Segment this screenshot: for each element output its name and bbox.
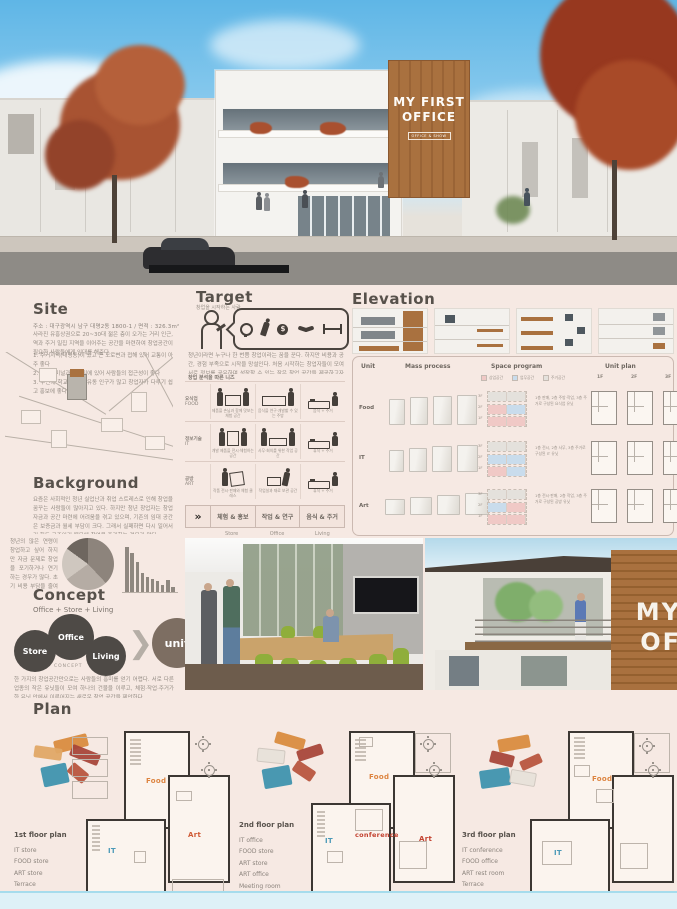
wall-tv [353,576,419,614]
chevron-right-icon: ❯ [128,626,153,661]
double-chevron-icon: » [186,510,210,523]
sign-partial-text: OF [640,628,677,656]
concept-caption: CONCEPT [54,664,83,669]
background-paragraph-2: 청년의 많은 연령이 창업하고 싶어 하지만 자금 문제로 창업을 포기하거나 … [10,538,58,590]
exterior-wood-sign: MY OF [611,550,677,690]
runner-icon [260,321,270,336]
building-glass-strip [222,162,396,186]
sidewalk [0,236,677,253]
balcony-slab [218,130,400,138]
needs-row-food: 요식업FOOD 제품을 손님과 함께 맛보는 체험 공간 음식을 연구·개발할 … [185,381,345,421]
summary-office: 작업 & 연구 [255,506,300,527]
unit-label: Food [359,405,374,411]
floor-1f: 1F [597,375,603,380]
plan-group-3: 3rd floor plan IT conference FOOD office… [458,695,677,893]
unit-row-it: IT 3F 2F 1F 1층 전시, 2층 사무, 3층 주거로 구성된 IT … [359,437,667,483]
balcony-planter [285,176,309,188]
pedestrian [524,192,530,206]
founder-person-icon [196,310,226,348]
cloud [210,20,360,70]
presentation-board: MY FIRSTOFFICE OFFICE & SHOW Site 주소 : 대… [0,0,677,909]
autumn-tree-left [95,45,185,125]
plan-item: Terrace [14,879,49,890]
unit-row-food: Food 3F 2F 1F 1층 판매, 2층 주방·작업, 3층 주거로 구성… [359,387,667,433]
floor-plan-drawing: Food conference IT Art [297,731,455,899]
wood-signage-tower: MY FIRSTOFFICE OFFICE & SHOW [388,60,470,198]
label-office: Office [254,531,299,537]
needs-summary-en: Store Office Living [185,531,345,537]
need-caption: 제품을 손님과 함께 맛보는 체험 공간 [212,408,254,419]
plan-item: FOOD store [239,846,281,857]
room-label-food: Food [369,773,389,781]
floor-plan-drawing: Food IT Art [72,731,230,899]
plan-item: IT office [239,835,281,846]
pedestrian [256,196,262,210]
balcony-slab [218,184,400,192]
site-map-target-building [67,374,87,400]
col-unit-plan: Unit plan [605,363,636,370]
unit-plans [591,391,677,425]
interior-rendering [185,538,423,690]
plan-items: IT conference FOOD office ART rest room … [462,845,504,891]
row-label-en: FOOD [185,402,210,407]
barbell-icon [323,324,342,334]
room-label-food: Food [146,777,166,785]
site-address: 주소 : 대구광역시 남구 대명2동 1800-1 / 면적 : 326.3m² [33,322,183,330]
lightbulb-icon [240,323,253,336]
need-caption: 개발 제품을 전시·체험하는 공간 [212,448,254,459]
col-mass-process: Mass process [405,363,450,370]
needs-table: 요식업FOOD 제품을 손님과 함께 맛보는 체험 공간 음식을 연구·개발할 … [185,381,345,537]
need-caption: 휴식 + 주거 [302,448,344,459]
room-label-it: IT [325,837,333,845]
pedestrian [378,176,384,188]
col-space-program: Space program [491,363,542,370]
autumn-tree-left [45,120,115,190]
unit-table: Unit Mass process Space program Unit pla… [352,356,674,536]
plan-name: 2nd floor plan [239,821,294,829]
floor-2f: 2F [631,375,637,380]
hero-rendering: MY FIRSTOFFICE OFFICE & SHOW [0,0,677,285]
row-label-en: ART [185,482,210,487]
pedestrian [264,197,270,211]
plan-item: ART store [239,858,281,869]
needs-row-it: 정보기술IT 개발 제품을 전시·체험하는 공간 사무·회의를 위한 작업 공간… [185,421,345,461]
elevation-side-left [434,308,510,354]
unit-note: 1층 전시·판매, 2층 작업, 3층 주거로 구성된 공방 유닛 [535,493,587,504]
mass-process-models [389,445,478,472]
ground-floor-glazing [298,196,390,236]
seated-person [323,616,339,642]
need-caption: 음식을 연구·개발할 수 있는 주방 [257,408,299,419]
room-label-food: Food [592,775,612,783]
speech-bubble: $ [233,308,349,350]
needs-summary: » 체험 & 홍보 작업 & 연구 음식 & 주거 [185,505,345,528]
space-program-diagram: 3F 2F 1F [487,441,527,479]
row-label-en: IT [185,442,210,447]
footer-band [0,891,677,909]
elevation-side-right [598,308,674,354]
sign-partial-text: MY [636,598,677,626]
floor-plan-drawing: Food IT [516,731,674,899]
plan-item: IT store [14,845,49,856]
plan-items: IT store FOOD store ART store Terrace [14,845,49,891]
plan-item: ART store [14,868,49,879]
building-glass-strip [222,108,396,132]
label-store: Store [209,531,254,537]
legend-item: 상업공간 [481,375,503,381]
legend-item: 업무공간 [512,375,534,381]
needs-caption: 창업 분석을 따른 니즈 [188,374,235,381]
unit-row-art: Art 3F 2F 1F 1층 전시·판매, 2층 작업, 3층 주거로 구성된… [359,485,667,531]
coin-icon: $ [277,324,288,335]
exterior-rendering: MY OF [425,538,677,690]
target-description: 청년이라면 누구나 한 번쯤 창업이라는 꿈을 꾼다. 하지만 비용과 공간, … [188,352,344,374]
tree-trunk [112,175,117,243]
need-caption: 사무·회의를 위한 작업 공간 [257,448,299,459]
plan-item: ART rest room [462,868,504,879]
pedestrian [302,194,308,208]
elevation-front [352,308,428,354]
room-label-art: Art [188,831,201,839]
need-caption: 작업실과 재료 보관 공간 [257,488,299,499]
parked-car [143,247,235,269]
unit-plans [591,489,677,523]
pie-chart [62,538,114,590]
plan-group-2: 2nd floor plan IT office FOOD store ART … [235,695,457,893]
sign-title: MY FIRSTOFFICE [393,95,465,125]
plan-item: Terrace [462,879,504,890]
unit-plans [591,441,677,475]
space-program-diagram: 3F 2F 1F [487,391,527,429]
concept-title: Concept [33,586,105,604]
unit-label: Art [359,503,369,509]
legend-item: 주거공간 [543,375,565,381]
needs-row-art: 공방ART 작품 전시·판매와 체험 클래스 작업실과 재료 보관 공간 휴식 … [185,461,345,501]
need-caption: 음식 + 주거 [302,408,344,419]
sign-subtitle: OFFICE & SHOW [408,132,451,140]
plan-item: FOOD office [462,856,504,867]
elevation-title: Elevation [352,290,435,308]
plan-group-1: 1st floor plan IT store FOOD store ART s… [10,695,232,893]
background-paragraph-1: 요즘은 사회적인 청년 실업난과 취업 스트레스로 인해 창업을 꿈꾸는 사람들… [33,496,173,534]
need-caption: 작품 전시·판매와 체험 클래스 [212,488,254,499]
balcony-planter [320,122,346,135]
label-living: Living [300,531,345,537]
need-caption: 휴식 + 주거 [302,488,344,499]
elevation-back [516,308,592,354]
tree-trunk [612,160,617,240]
balcony-planter [250,122,272,134]
col-unit: Unit [361,363,375,370]
room-label-it: IT [554,849,562,857]
plan-name: 3rd floor plan [462,831,516,839]
bar-chart [122,536,178,593]
concept-formula: Office + Store + Living [33,606,113,614]
mass-process-models [385,493,489,515]
site-title: Site [33,300,68,318]
background-title: Background [33,474,139,492]
unit-label: IT [359,455,365,461]
green-chair [281,626,295,638]
plan-name: 1st floor plan [14,831,67,839]
plan-item: FOOD store [14,856,49,867]
unit-note: 1층 전시, 2층 사무, 3층 주거로 구성된 IT 유닛 [535,445,587,456]
road [0,252,677,285]
unit-note: 1층 판매, 2층 주방·작업, 3층 주거로 구성된 요식업 유닛 [535,395,587,406]
meeting-table [225,634,393,660]
room-label-conference: conference [355,831,399,839]
handshake-icon [298,324,314,334]
space-program-diagram: 3F 2F 1F [487,489,527,527]
space-program-legend: 상업공간 업무공간 주거공간 [481,375,565,381]
floor-3f: 3F [665,375,671,380]
room-label-it: IT [108,847,116,855]
room-label-art: Art [419,835,432,843]
mass-process-models [389,395,477,425]
plan-item: ART office [239,869,281,880]
site-map [5,352,173,464]
autumn-tree-right [575,60,677,170]
summary-store: 체험 & 홍보 [210,506,255,527]
summary-living: 음식 & 주거 [299,506,344,527]
concept-circle-living: Living [86,636,126,676]
plan-item: IT conference [462,845,504,856]
